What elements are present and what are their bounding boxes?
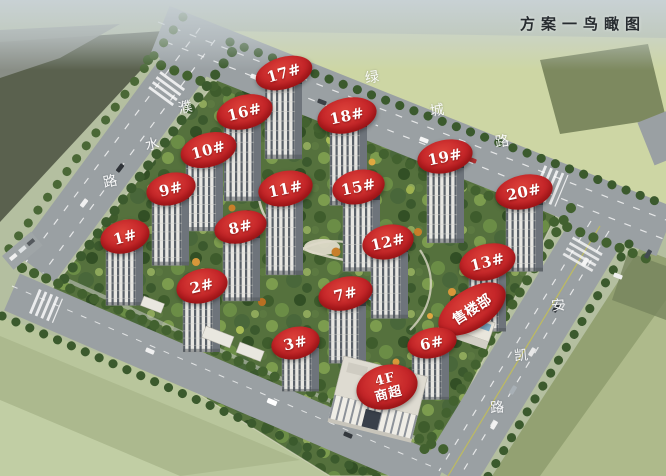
road-name-ankai-char-1: 凯 xyxy=(513,344,529,365)
road-name-ankai-char-0: 安 xyxy=(550,294,566,315)
tower-16 xyxy=(224,119,261,202)
haze-overlay xyxy=(0,0,666,70)
tower-8 xyxy=(223,234,260,302)
aerial-rendering-image: 方案一鸟瞰图 濮 水 路 绿 城 路 安 凯 路 17# 16# 18# 10#… xyxy=(0,0,666,476)
tower-11 xyxy=(266,195,303,275)
road-name-lucheng-char-1: 城 xyxy=(429,99,446,121)
road-name-lucheng-char-0: 绿 xyxy=(364,66,381,88)
road-name-lucheng-char-2: 路 xyxy=(494,130,511,152)
tower-17 xyxy=(265,79,302,159)
tower-7 xyxy=(329,302,366,364)
tower-19 xyxy=(427,163,464,243)
road-name-ankai-char-2: 路 xyxy=(489,396,505,417)
page-title: 方案一鸟瞰图 xyxy=(520,13,646,34)
road-stub-ne xyxy=(646,132,666,144)
